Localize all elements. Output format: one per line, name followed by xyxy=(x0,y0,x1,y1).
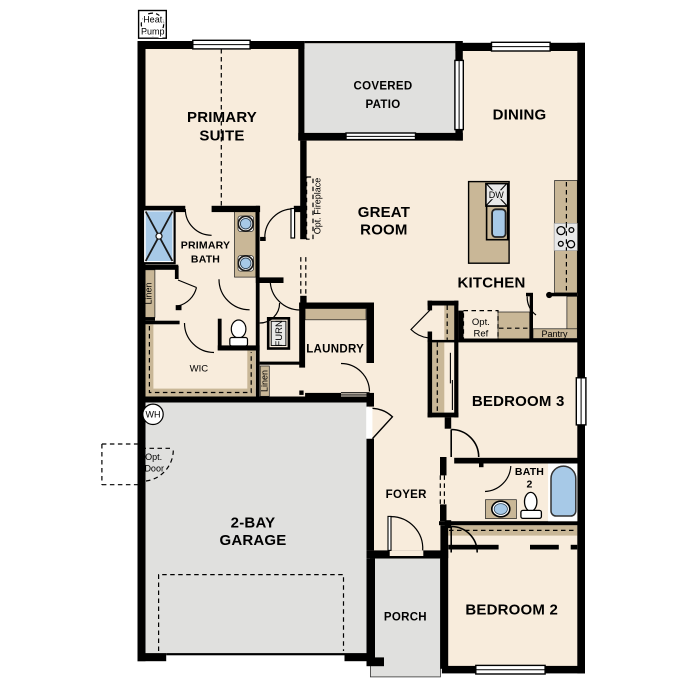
svg-text:LAUNDRY: LAUNDRY xyxy=(306,343,364,355)
svg-text:KITCHEN: KITCHEN xyxy=(457,275,525,292)
svg-text:DW: DW xyxy=(489,190,504,200)
svg-text:BATH: BATH xyxy=(515,466,544,478)
svg-text:2-BAY: 2-BAY xyxy=(231,514,276,531)
svg-text:BEDROOM 2: BEDROOM 2 xyxy=(465,602,558,619)
svg-text:Pump: Pump xyxy=(141,27,165,37)
svg-text:Ref: Ref xyxy=(474,329,489,340)
svg-text:FOYER: FOYER xyxy=(386,489,428,501)
svg-text:WH: WH xyxy=(146,410,161,420)
svg-text:BATH: BATH xyxy=(191,254,220,266)
svg-text:WIC: WIC xyxy=(190,363,209,374)
svg-text:DINING: DINING xyxy=(493,107,547,124)
svg-text:Pantry: Pantry xyxy=(541,329,568,339)
svg-text:Linen: Linen xyxy=(144,282,154,304)
svg-text:SUITE: SUITE xyxy=(199,128,244,145)
svg-text:Linen: Linen xyxy=(260,370,270,392)
svg-text:Opt.: Opt. xyxy=(472,317,490,328)
svg-text:Heat: Heat xyxy=(143,15,163,25)
svg-text:Opt. Fireplace: Opt. Fireplace xyxy=(313,178,323,235)
svg-text:2: 2 xyxy=(526,478,532,490)
svg-text:GARAGE: GARAGE xyxy=(219,532,286,549)
svg-text:BEDROOM 3: BEDROOM 3 xyxy=(472,393,565,410)
svg-text:PATIO: PATIO xyxy=(366,99,401,111)
svg-text:FURN: FURN xyxy=(274,320,285,347)
svg-text:PORCH: PORCH xyxy=(384,612,427,624)
svg-text:Door: Door xyxy=(144,464,164,474)
svg-text:ROOM: ROOM xyxy=(360,222,407,239)
svg-text:PRIMARY: PRIMARY xyxy=(181,239,230,251)
svg-text:GREAT: GREAT xyxy=(358,204,410,221)
svg-text:COVERED: COVERED xyxy=(354,80,413,92)
svg-text:PRIMARY: PRIMARY xyxy=(187,109,257,126)
svg-text:Opt.: Opt. xyxy=(145,452,162,462)
